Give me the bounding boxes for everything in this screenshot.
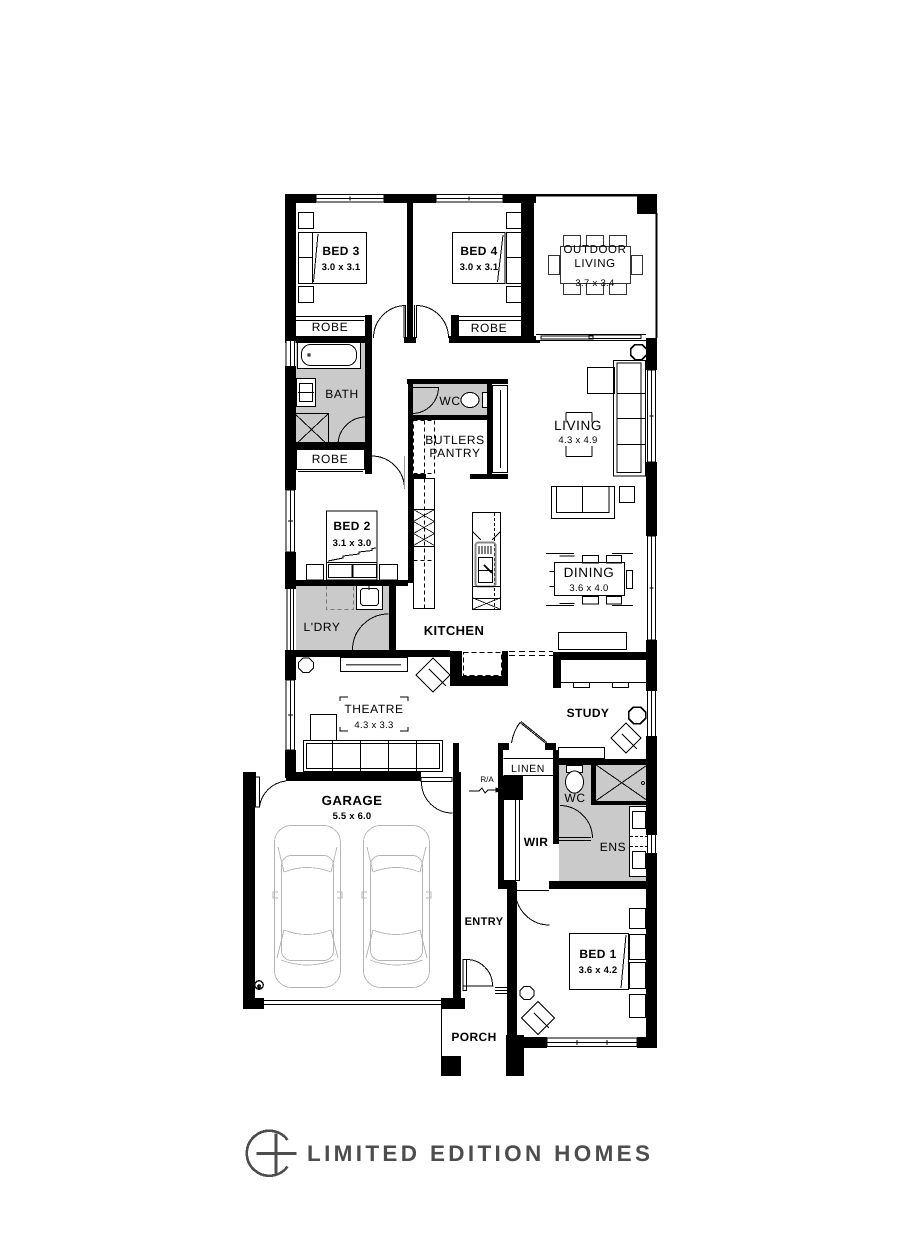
svg-text:BED 1: BED 1 bbox=[579, 947, 616, 961]
svg-text:3.6 x 4.0: 3.6 x 4.0 bbox=[569, 583, 608, 594]
svg-text:ROBE: ROBE bbox=[312, 320, 348, 334]
svg-text:LIMITED EDITION HOMES: LIMITED EDITION HOMES bbox=[307, 1141, 650, 1166]
svg-text:4.3 x 3.3: 4.3 x 3.3 bbox=[354, 720, 393, 731]
svg-text:STUDY: STUDY bbox=[567, 706, 610, 720]
svg-text:ENS: ENS bbox=[600, 840, 626, 854]
svg-text:3.6 x 4.2: 3.6 x 4.2 bbox=[579, 965, 618, 976]
svg-text:3.0 x 3.1: 3.0 x 3.1 bbox=[460, 262, 499, 273]
svg-text:GARAGE: GARAGE bbox=[322, 793, 383, 808]
svg-text:ROBE: ROBE bbox=[312, 452, 348, 466]
svg-text:L'DRY: L'DRY bbox=[303, 620, 340, 634]
svg-text:PORCH: PORCH bbox=[451, 1030, 496, 1044]
svg-text:3.1 x 3.0: 3.1 x 3.0 bbox=[333, 538, 372, 549]
svg-text:WIR: WIR bbox=[524, 835, 549, 849]
svg-text:LIVING: LIVING bbox=[574, 258, 615, 270]
svg-text:BATH: BATH bbox=[325, 387, 359, 401]
svg-text:ROBE: ROBE bbox=[471, 321, 507, 335]
svg-text:BUTLERS: BUTLERS bbox=[425, 433, 485, 447]
svg-text:LIVING: LIVING bbox=[554, 418, 602, 433]
svg-text:PANTRY: PANTRY bbox=[429, 446, 480, 460]
svg-text:KITCHEN: KITCHEN bbox=[424, 623, 485, 638]
svg-text:3.0 x 3.1: 3.0 x 3.1 bbox=[322, 262, 361, 273]
svg-text:WC: WC bbox=[564, 791, 585, 805]
svg-text:THEATRE: THEATRE bbox=[344, 702, 403, 716]
svg-text:4.3 x 4.9: 4.3 x 4.9 bbox=[558, 435, 597, 446]
svg-text:OUTDOOR: OUTDOOR bbox=[564, 244, 627, 256]
svg-text:ENTRY: ENTRY bbox=[465, 916, 504, 928]
svg-text:BED 3: BED 3 bbox=[322, 244, 359, 258]
svg-text:LINEN: LINEN bbox=[511, 763, 545, 775]
svg-text:5.5 x 6.0: 5.5 x 6.0 bbox=[333, 811, 372, 822]
svg-text:BED 4: BED 4 bbox=[460, 244, 497, 258]
svg-text:BED 2: BED 2 bbox=[333, 519, 370, 533]
svg-text:3.7 x 3.4: 3.7 x 3.4 bbox=[575, 278, 614, 289]
svg-text:WC: WC bbox=[439, 394, 460, 408]
svg-text:R/A: R/A bbox=[480, 775, 494, 784]
svg-text:DINING: DINING bbox=[564, 565, 615, 580]
